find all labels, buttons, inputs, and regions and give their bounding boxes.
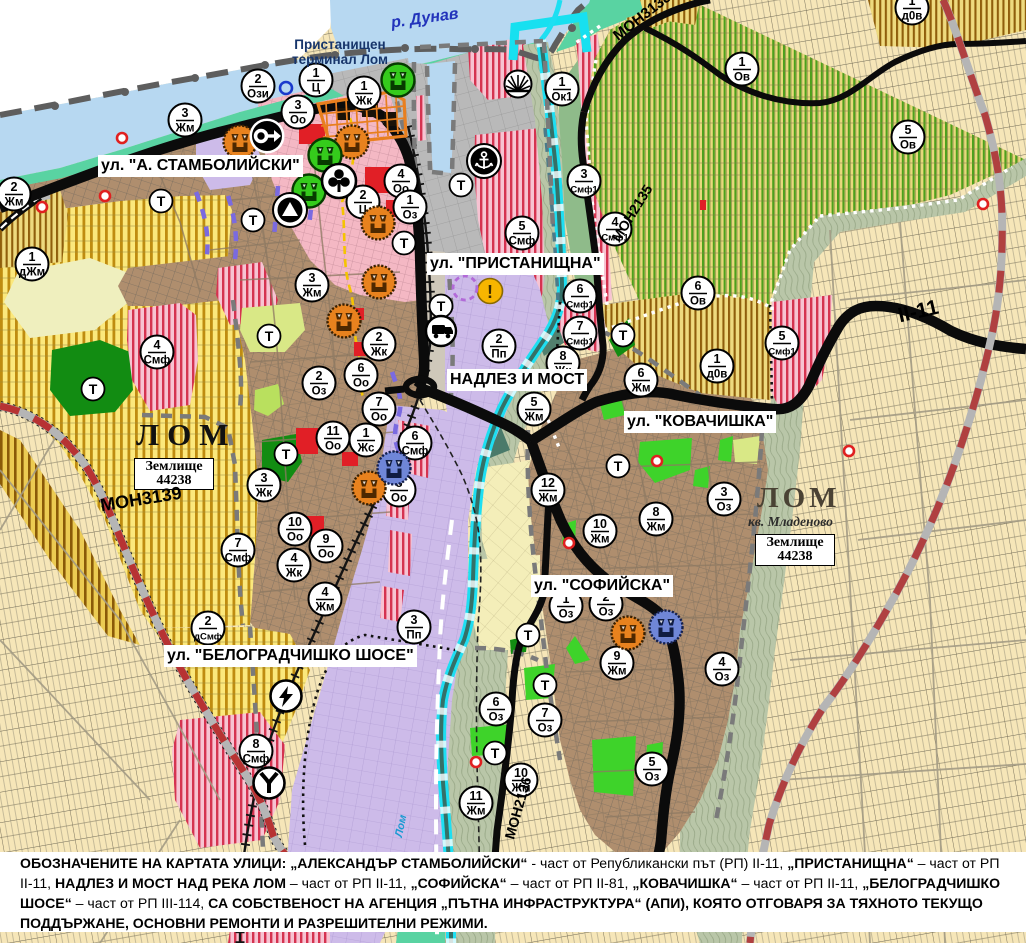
svg-text:Жм: Жм	[646, 522, 666, 534]
svg-text:6: 6	[577, 282, 584, 296]
svg-text:1: 1	[29, 250, 36, 264]
svg-text:Жм: Жм	[538, 493, 558, 505]
svg-text:3: 3	[581, 167, 588, 181]
svg-text:5: 5	[649, 755, 656, 769]
svg-text:6: 6	[493, 695, 500, 709]
svg-text:Жм: Жм	[315, 602, 335, 614]
svg-text:Пп: Пп	[406, 630, 421, 642]
svg-text:Жм: Жм	[466, 806, 486, 818]
svg-text:Жм: Жм	[607, 666, 627, 678]
svg-text:Смф: Смф	[225, 553, 252, 565]
svg-text:Оз: Оз	[717, 502, 732, 514]
svg-text:Т: Т	[437, 298, 446, 314]
svg-text:Т: Т	[614, 458, 623, 474]
svg-text:Смф1: Смф1	[570, 185, 598, 196]
svg-text:8: 8	[253, 737, 260, 751]
svg-text:1: 1	[407, 193, 414, 207]
svg-text:3: 3	[309, 271, 316, 285]
svg-text:8: 8	[653, 505, 660, 519]
svg-text:Жк: Жк	[285, 568, 302, 580]
svg-text:6: 6	[638, 366, 645, 380]
svg-text:Т: Т	[282, 446, 291, 462]
svg-text:Жк: Жк	[370, 347, 387, 359]
svg-text:1: 1	[739, 55, 746, 69]
svg-text:Жм: Жм	[4, 197, 24, 209]
svg-text:1: 1	[361, 79, 368, 93]
svg-text:Смф1: Смф1	[566, 300, 594, 311]
svg-text:Оо: Оо	[318, 549, 334, 561]
svg-text:Ов: Ов	[900, 140, 916, 152]
svg-text:1: 1	[313, 66, 320, 80]
svg-text:3: 3	[261, 471, 268, 485]
svg-text:7: 7	[542, 706, 549, 720]
svg-text:Смф: Смф	[144, 355, 171, 367]
svg-text:Оз: Оз	[538, 723, 553, 735]
svg-text:Т: Т	[541, 677, 550, 693]
svg-text:4: 4	[154, 338, 161, 352]
svg-text:Оз: Оз	[645, 772, 660, 784]
svg-text:Т: Т	[249, 212, 258, 228]
svg-text:Жм: Жм	[302, 288, 322, 300]
svg-text:2: 2	[255, 72, 262, 86]
svg-text:Ок1: Ок1	[551, 92, 573, 104]
svg-text:Т: Т	[491, 745, 500, 761]
svg-text:5: 5	[905, 123, 912, 137]
svg-text:4: 4	[322, 585, 329, 599]
svg-text:Оо: Оо	[325, 441, 341, 453]
svg-text:Ц: Ц	[312, 83, 321, 95]
svg-text:дСмф: дСмф	[194, 632, 222, 643]
svg-text:Жм: Жм	[175, 123, 195, 135]
svg-text:5: 5	[531, 395, 538, 409]
svg-text:2: 2	[360, 188, 367, 202]
svg-text:Оз: Оз	[489, 712, 504, 724]
svg-text:Т: Т	[89, 381, 98, 397]
svg-text:дЖм: дЖм	[19, 267, 45, 279]
svg-text:3: 3	[295, 98, 302, 112]
svg-text:Смф: Смф	[402, 446, 429, 458]
svg-text:12: 12	[541, 476, 555, 490]
svg-text:Оо: Оо	[290, 115, 306, 127]
svg-text:5: 5	[779, 329, 786, 343]
svg-text:3: 3	[721, 485, 728, 499]
svg-text:д0в: д0в	[902, 11, 923, 23]
svg-text:Оз: Оз	[715, 672, 730, 684]
svg-text:6: 6	[358, 361, 365, 375]
svg-text:10: 10	[288, 515, 302, 529]
svg-text:Т: Т	[457, 177, 466, 193]
svg-text:Ов: Ов	[734, 72, 750, 84]
svg-text:9: 9	[614, 649, 621, 663]
svg-text:11: 11	[469, 789, 482, 803]
svg-text:Жм: Жм	[631, 383, 651, 395]
svg-text:2: 2	[496, 332, 503, 346]
svg-text:Оз: Оз	[559, 609, 574, 621]
svg-text:7: 7	[376, 395, 383, 409]
svg-text:1: 1	[714, 352, 721, 366]
svg-text:3: 3	[182, 106, 189, 120]
svg-text:10: 10	[593, 517, 607, 531]
svg-text:Ози: Ози	[247, 89, 269, 101]
svg-text:Жм: Жм	[590, 534, 610, 546]
svg-text:Смф1: Смф1	[566, 337, 594, 348]
svg-text:Оо: Оо	[287, 532, 303, 544]
svg-text:2: 2	[11, 180, 18, 194]
svg-text:4: 4	[291, 551, 298, 565]
svg-text:4: 4	[719, 655, 726, 669]
svg-text:4: 4	[398, 167, 405, 181]
svg-text:Жк: Жк	[255, 488, 272, 500]
svg-text:7: 7	[577, 319, 584, 333]
svg-text:Т: Т	[524, 627, 533, 643]
svg-text:6: 6	[412, 429, 419, 443]
svg-text:!: !	[487, 282, 493, 302]
svg-text:д0в: д0в	[707, 369, 728, 381]
svg-text:6: 6	[695, 279, 702, 293]
svg-text:Оо: Оо	[371, 412, 387, 424]
svg-text:11: 11	[326, 424, 339, 438]
svg-text:Смф: Смф	[243, 754, 270, 766]
svg-text:1: 1	[909, 0, 916, 8]
svg-text:9: 9	[323, 532, 330, 546]
svg-text:Жм: Жм	[524, 412, 544, 424]
svg-text:Оз: Оз	[403, 210, 418, 222]
svg-text:2: 2	[205, 614, 212, 628]
svg-text:3: 3	[411, 613, 418, 627]
svg-text:Жк: Жк	[355, 96, 372, 108]
svg-text:Оо: Оо	[353, 378, 369, 390]
svg-text:Оо: Оо	[391, 493, 407, 505]
svg-text:2: 2	[376, 330, 383, 344]
svg-text:1: 1	[363, 426, 370, 440]
svg-text:Смф: Смф	[509, 236, 536, 248]
svg-text:Т: Т	[400, 235, 409, 251]
svg-text:Т: Т	[157, 193, 166, 209]
svg-text:7: 7	[235, 536, 242, 550]
svg-text:Т: Т	[619, 327, 628, 343]
svg-text:Оз: Оз	[599, 607, 614, 619]
svg-text:1: 1	[559, 75, 566, 89]
svg-text:5: 5	[519, 219, 526, 233]
svg-text:Т: Т	[265, 328, 274, 344]
svg-text:Смф1: Смф1	[768, 347, 796, 358]
svg-text:Пп: Пп	[491, 349, 506, 361]
svg-text:Оз: Оз	[312, 386, 327, 398]
svg-text:8: 8	[560, 349, 567, 363]
svg-text:2: 2	[316, 369, 323, 383]
svg-text:Ов: Ов	[690, 296, 706, 308]
svg-text:Жс: Жс	[357, 443, 375, 455]
